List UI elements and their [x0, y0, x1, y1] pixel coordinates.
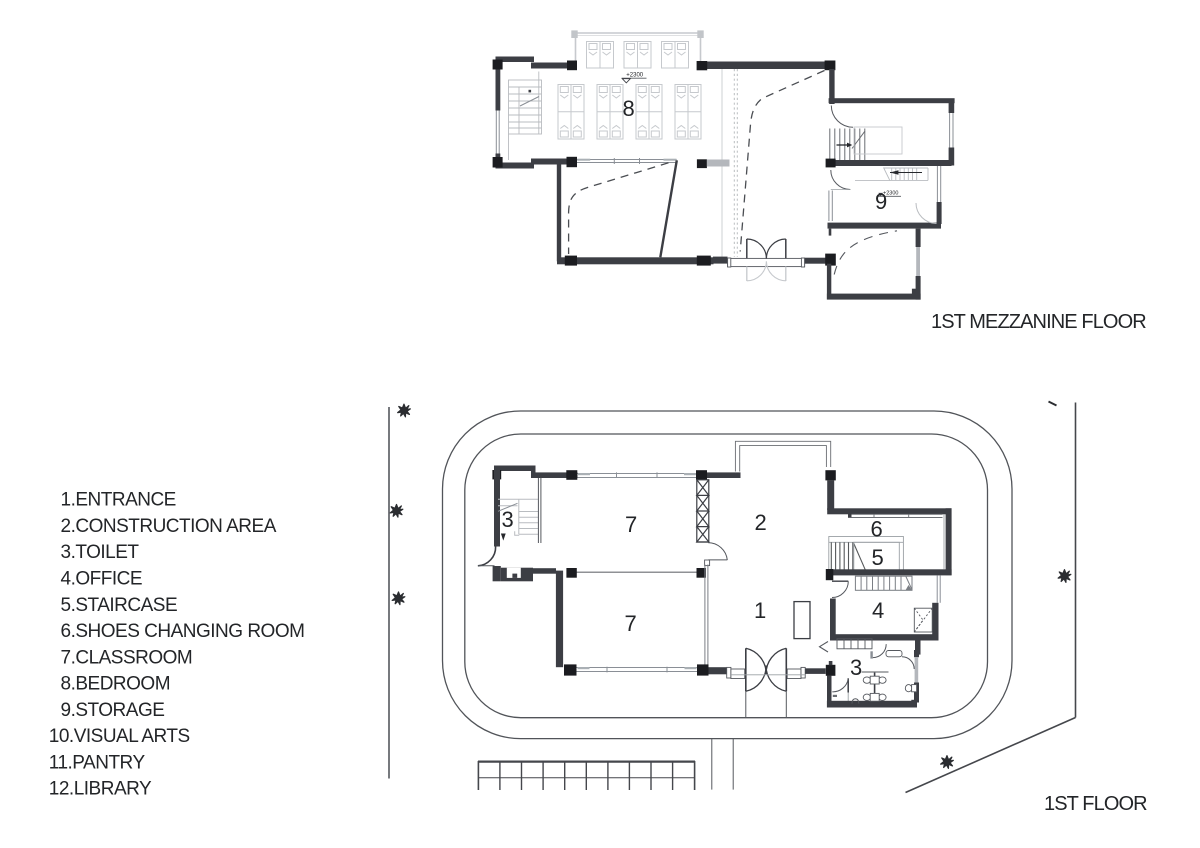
svg-text:7: 7 — [625, 512, 637, 537]
svg-text:1ST MEZZANINE FLOOR: 1ST MEZZANINE FLOOR — [931, 311, 1146, 333]
svg-text:9.STORAGE: 9.STORAGE — [61, 700, 165, 721]
svg-text:8: 8 — [623, 96, 635, 121]
svg-text:7.CLASSROOM: 7.CLASSROOM — [61, 647, 193, 668]
svg-text:8.BEDROOM: 8.BEDROOM — [61, 674, 171, 695]
svg-text:5.STAIRCASE: 5.STAIRCASE — [61, 595, 178, 616]
svg-text:6.SHOES CHANGING ROOM: 6.SHOES CHANGING ROOM — [61, 621, 305, 642]
svg-text:7: 7 — [625, 611, 637, 636]
svg-text:5: 5 — [872, 545, 884, 570]
svg-text:6: 6 — [871, 517, 883, 542]
svg-text:3.TOILET: 3.TOILET — [61, 542, 140, 563]
svg-text:4.OFFICE: 4.OFFICE — [61, 569, 143, 590]
svg-text:1ST FLOOR: 1ST FLOOR — [1044, 793, 1147, 815]
svg-text:10.VISUAL ARTS: 10.VISUAL ARTS — [49, 726, 190, 747]
svg-text:2: 2 — [755, 510, 767, 535]
svg-text:1: 1 — [754, 598, 766, 623]
svg-text:+2300: +2300 — [626, 73, 644, 79]
svg-text:3: 3 — [850, 655, 862, 680]
svg-text:4: 4 — [872, 598, 884, 623]
svg-text:1.ENTRANCE: 1.ENTRANCE — [61, 490, 176, 511]
svg-text:11.PANTRY: 11.PANTRY — [49, 752, 146, 773]
svg-text:9: 9 — [875, 189, 887, 214]
svg-text:12.LIBRARY: 12.LIBRARY — [49, 779, 152, 800]
svg-text:2.CONSTRUCTION AREA: 2.CONSTRUCTION AREA — [61, 516, 277, 537]
svg-text:3: 3 — [502, 507, 514, 532]
